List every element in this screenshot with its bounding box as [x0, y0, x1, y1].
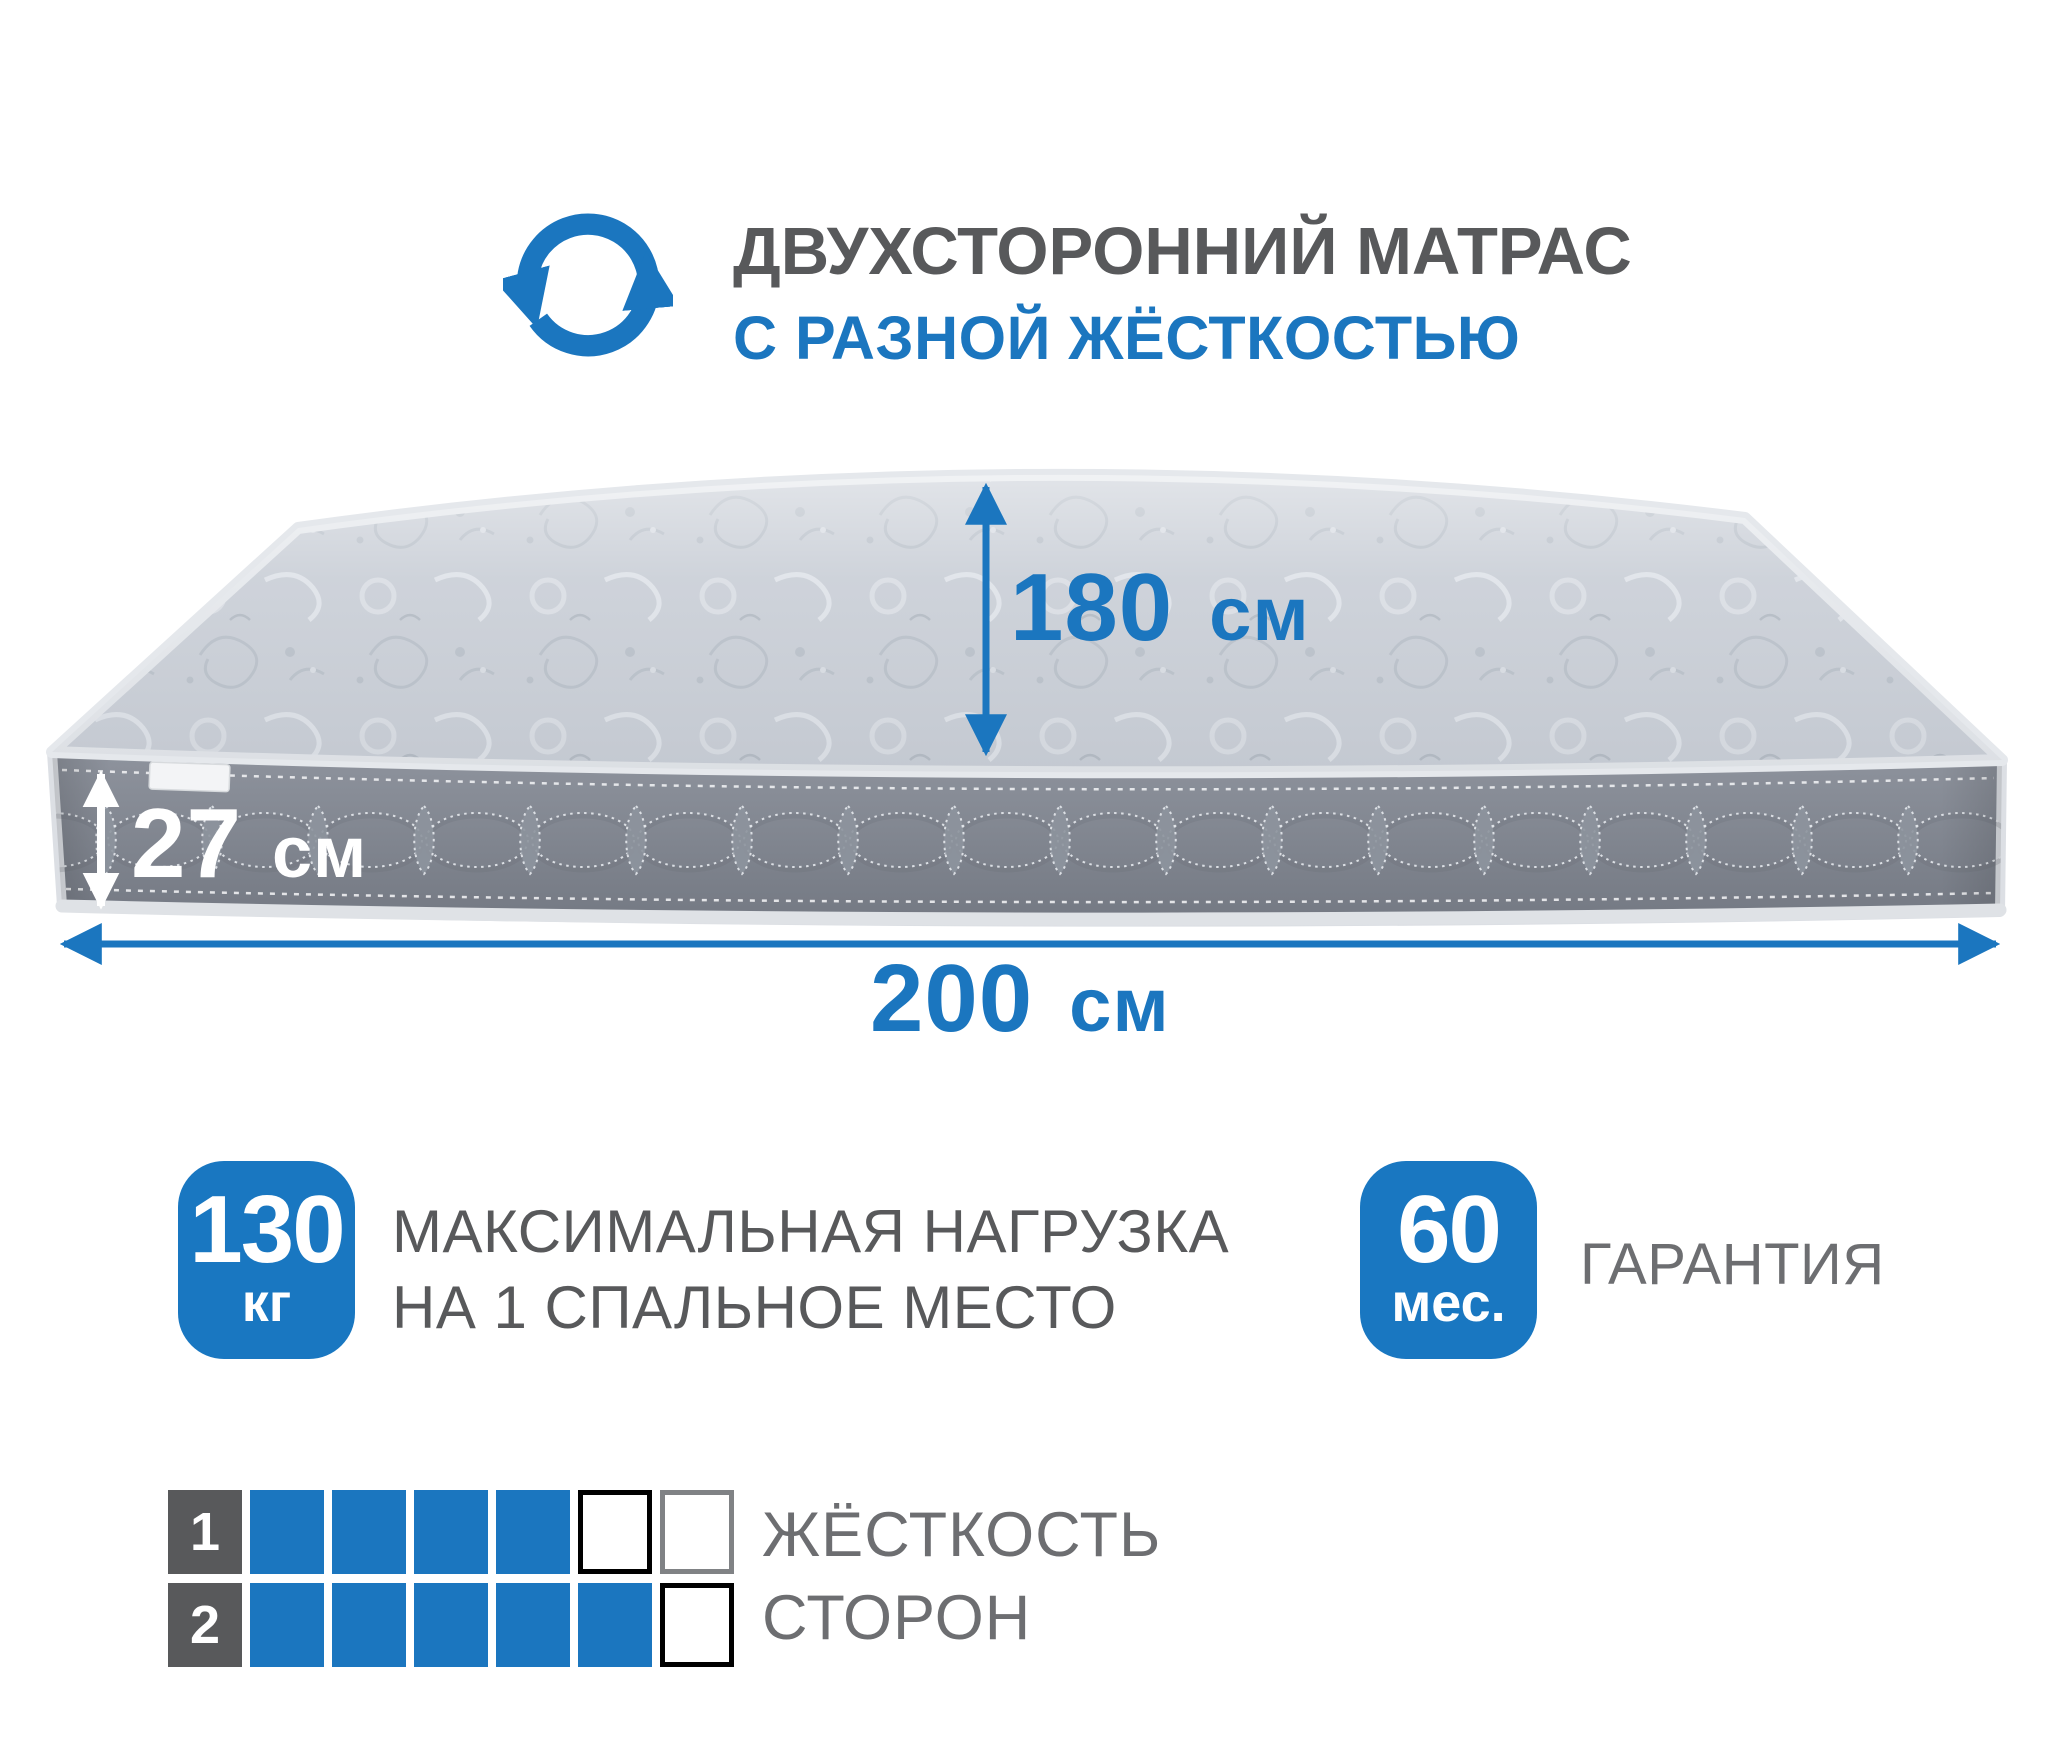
warranty-unit: мес. [1391, 1274, 1505, 1333]
max-load-unit: кг [242, 1274, 292, 1333]
max-load-badge: 130 кг [178, 1161, 355, 1359]
dimension-depth-unit: см [1209, 577, 1310, 653]
hardness-cell-empty [660, 1583, 734, 1667]
hardness-cells-side1 [250, 1490, 734, 1574]
hardness-caption: ЖЁСТКОСТЬ СТОРОН [762, 1494, 1161, 1659]
hardness-caption-line1: ЖЁСТКОСТЬ [762, 1494, 1161, 1577]
hardness-cell-filled [496, 1583, 570, 1667]
warranty-label-line1: ГАРАНТИЯ [1580, 1228, 1885, 1302]
hardness-cell-filled [414, 1583, 488, 1667]
max-load-value: 130 [189, 1186, 343, 1274]
max-load-label: МАКСИМАЛЬНАЯ НАГРУЗКА НА 1 СПАЛЬНОЕ МЕСТ… [392, 1194, 1229, 1346]
hardness-cell-filled [332, 1490, 406, 1574]
dimension-width-label: 200 см [870, 951, 1170, 1047]
hardness-cell-empty [660, 1490, 734, 1574]
dimension-thickness-label: 27 см [131, 794, 367, 892]
mattress-infographic: ДВУХСТОРОННИЙ МАТРАС С РАЗНОЙ ЖЁСТКОСТЬЮ [0, 0, 2048, 1757]
warranty-label: ГАРАНТИЯ [1580, 1228, 1885, 1302]
hardness-row-label: 2 [168, 1583, 242, 1667]
warranty-badge: 60 мес. [1360, 1161, 1537, 1359]
dimension-thickness-unit: см [272, 817, 367, 889]
hardness-row-side1: 1 [168, 1490, 734, 1574]
hardness-cell-filled [332, 1583, 406, 1667]
max-load-label-line1: МАКСИМАЛЬНАЯ НАГРУЗКА [392, 1194, 1229, 1270]
dimension-depth-value: 180 [1010, 560, 1173, 656]
dimension-width-value: 200 [870, 951, 1033, 1047]
hardness-row-side2: 2 [168, 1583, 734, 1667]
hardness-cell-empty [578, 1490, 652, 1574]
hardness-cells-side2 [250, 1583, 734, 1667]
max-load-label-line2: НА 1 СПАЛЬНОЕ МЕСТО [392, 1270, 1229, 1346]
hardness-cell-filled [250, 1583, 324, 1667]
hardness-row-label: 1 [168, 1490, 242, 1574]
dimension-width-unit: см [1069, 968, 1170, 1044]
hardness-caption-line2: СТОРОН [762, 1577, 1161, 1660]
hardness-cell-filled [496, 1490, 570, 1574]
hardness-cell-filled [250, 1490, 324, 1574]
hardness-cell-filled [578, 1583, 652, 1667]
hardness-cell-filled [414, 1490, 488, 1574]
warranty-value: 60 [1397, 1186, 1500, 1274]
dimension-depth-label: 180 см [1010, 560, 1310, 656]
dimension-thickness-value: 27 [131, 794, 242, 892]
hardness-scale: 1 2 [168, 1490, 734, 1667]
